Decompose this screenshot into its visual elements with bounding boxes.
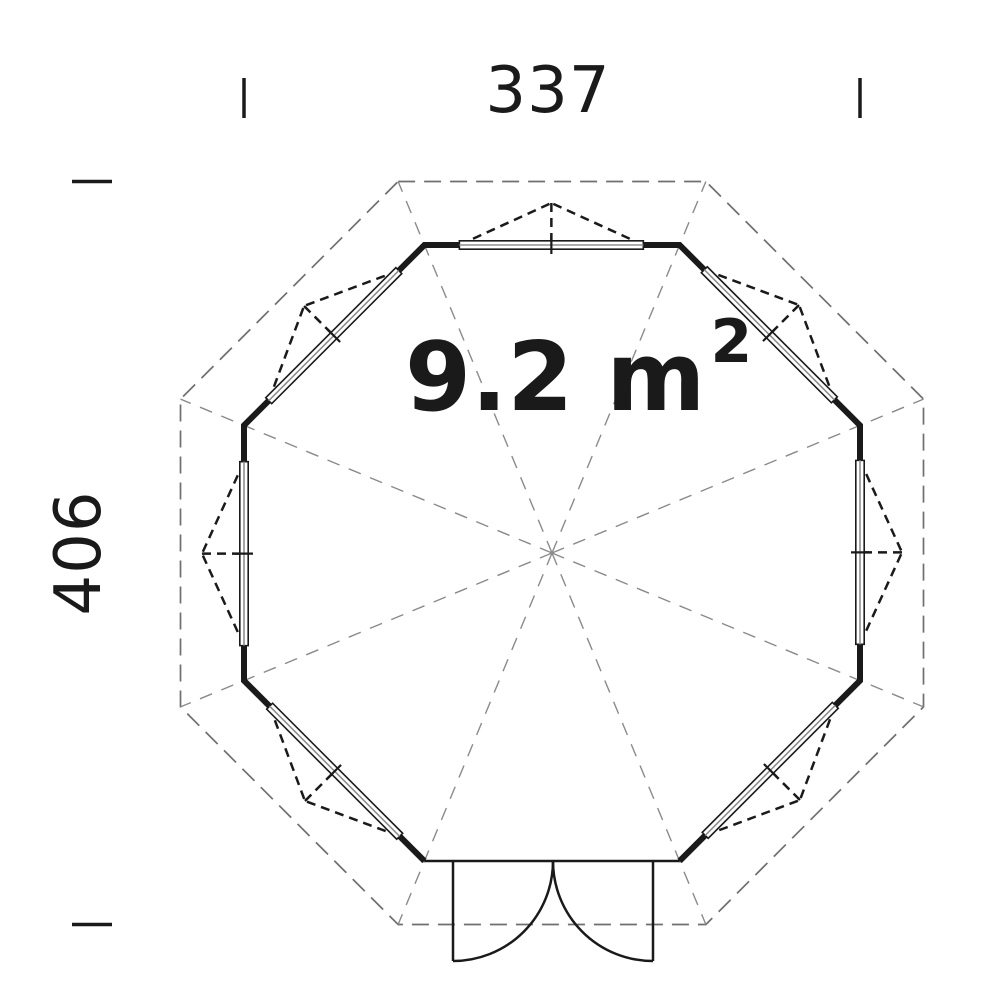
window-top-left [266,268,402,404]
window-right [851,460,902,644]
door-bottom [424,861,679,961]
floor-plan-page: 337 406 9.2 m 2 [0,0,1000,1000]
window-top [459,203,643,254]
area-value: 9.2 m [405,323,705,433]
area-label: 9.2 m 2 [405,307,752,433]
window-bottom-left [267,703,403,839]
roof-ridge-lines [181,182,924,925]
width-dimension-label: 337 [485,54,610,128]
window-left [202,462,253,646]
window-bottom-right [702,702,838,838]
height-dimension-label: 406 [42,490,116,615]
floor-plan-drawing: 337 406 9.2 m 2 [0,0,1000,1000]
area-exponent: 2 [710,307,752,377]
